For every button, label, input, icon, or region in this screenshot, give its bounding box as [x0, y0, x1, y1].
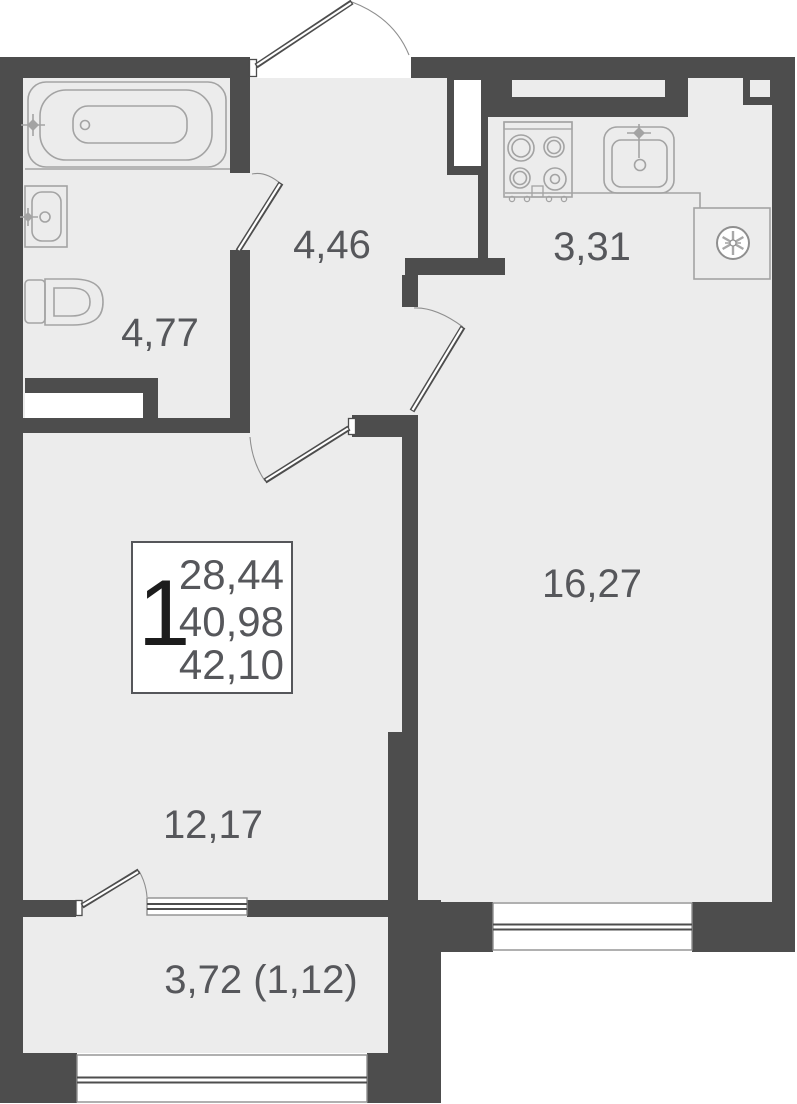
kitchen-area-label: 3,31 — [553, 225, 631, 269]
stove — [504, 122, 572, 202]
bathroom-area-label: 4,77 — [121, 311, 199, 355]
legend-living-area: 28,44 — [179, 551, 284, 598]
ventilation-unit — [694, 208, 770, 279]
bedroom-window — [147, 898, 247, 915]
balcony-window — [77, 1055, 367, 1102]
hallway-duct-niche — [454, 80, 481, 166]
legend-apartment-area: 40,98 — [179, 598, 284, 645]
bathroom-duct-niche — [25, 393, 143, 418]
floor-plan: 4,46 4,77 3,31 16,27 12,17 3,72 (1,12) 1… — [0, 0, 797, 1104]
floor-plan-page: 4,46 4,77 3,31 16,27 12,17 3,72 (1,12) 1… — [0, 0, 797, 1104]
legend-total-area: 42,10 — [179, 641, 284, 688]
living-room-window — [493, 903, 692, 950]
hallway-area-label: 4,46 — [293, 223, 371, 267]
kitchen-wall-niche — [512, 80, 665, 97]
entrance-door — [256, 2, 409, 66]
corner-wall-niche — [750, 80, 770, 97]
balcony-area-label: 3,72 (1,12) — [164, 958, 357, 1002]
bedroom-area-label: 12,17 — [163, 803, 263, 847]
legend: 1 28,44 40,98 42,10 — [132, 542, 292, 693]
living-room-area-label: 16,27 — [542, 562, 642, 606]
